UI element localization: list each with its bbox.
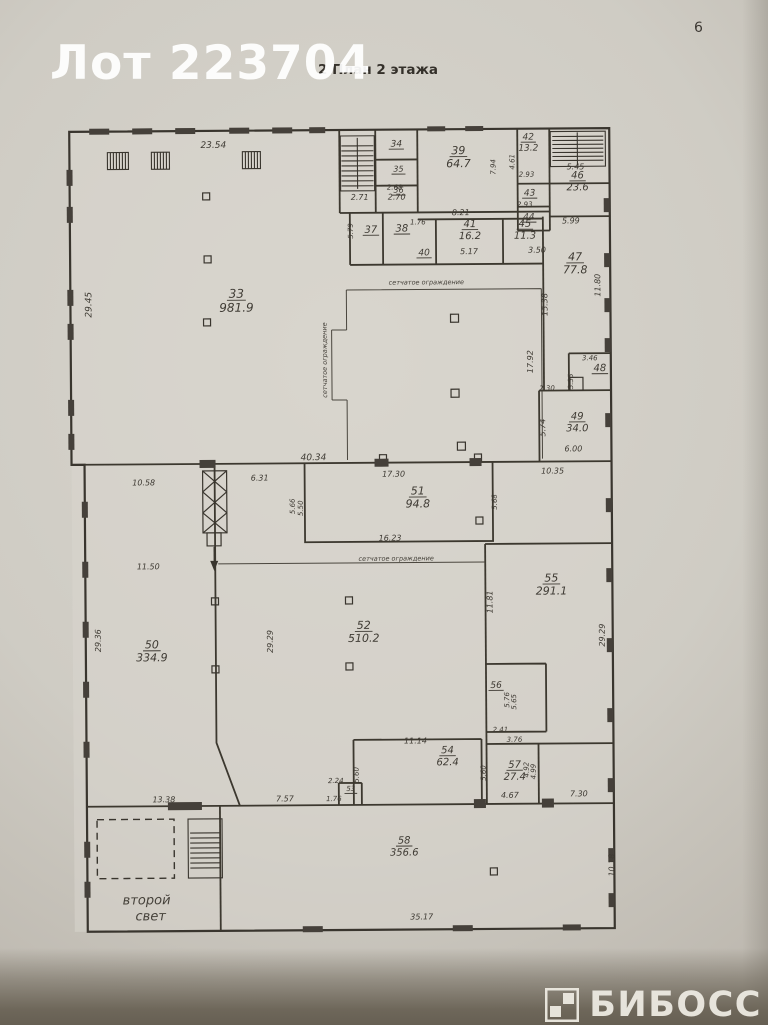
dim-label: 29.29: [598, 624, 607, 647]
biboss-watermark: БИБОСС: [545, 985, 762, 1025]
svg-text:48: 48: [593, 363, 606, 374]
dim-label: 5.60: [353, 767, 361, 783]
dim-label: 4.99: [530, 763, 538, 779]
dim-label: 5.74: [538, 419, 547, 437]
svg-text:11.3: 11.3: [514, 231, 536, 242]
dim-label: 40.34: [301, 453, 327, 463]
room-label: 56: [488, 681, 503, 691]
room-label: 37: [363, 225, 379, 236]
room-label: 34: [389, 140, 404, 150]
svg-text:51: 51: [411, 484, 425, 497]
dim-label: 2.30: [539, 384, 555, 392]
dim-label: 11.14: [404, 736, 427, 745]
svg-text:23.6: 23.6: [566, 182, 588, 193]
dim-label: 3.46: [582, 354, 598, 362]
svg-text:50: 50: [145, 638, 159, 651]
note-label: сетчатое ограждение: [359, 554, 434, 563]
svg-text:77.8: 77.8: [563, 263, 588, 276]
dim-label: 5.60: [480, 765, 488, 781]
svg-text:291.1: 291.1: [536, 584, 568, 597]
dim-label: 6.31: [251, 473, 269, 482]
dim-label: 5.79: [347, 223, 355, 239]
svg-text:34: 34: [391, 140, 403, 150]
svg-text:57: 57: [508, 760, 521, 771]
dim-label: 2.70: [388, 193, 406, 202]
dim-label: 7.94: [489, 159, 497, 175]
svg-text:40: 40: [418, 248, 430, 258]
dim-label: 5.99: [562, 216, 580, 225]
room-label: 35: [391, 165, 405, 175]
dim-label: 5.50: [297, 500, 305, 516]
svg-text:33: 33: [229, 287, 244, 301]
svg-text:38: 38: [395, 224, 408, 235]
page-number: 6: [694, 20, 703, 36]
svg-text:64.7: 64.7: [446, 157, 471, 170]
svg-text:47: 47: [568, 250, 582, 263]
svg-text:35: 35: [393, 165, 403, 174]
dim-label: 29.45: [84, 292, 94, 318]
dim-label: 35.17: [410, 912, 434, 921]
svg-text:49: 49: [571, 411, 584, 422]
svg-text:510.2: 510.2: [348, 632, 380, 645]
dim-label: 11.80: [593, 274, 602, 297]
svg-text:981.9: 981.9: [219, 301, 253, 315]
svg-text:53: 53: [346, 785, 355, 793]
svg-text:13.2: 13.2: [518, 144, 538, 154]
svg-text:37: 37: [365, 225, 378, 236]
dim-label: 5.68: [491, 494, 499, 510]
dim-label: 2.41: [493, 726, 509, 734]
dim-label: 4.61: [508, 154, 516, 170]
dim-label: 10.58: [132, 478, 155, 487]
svg-text:34.0: 34.0: [566, 423, 588, 434]
dim-label: 3.76: [507, 736, 523, 744]
dim-label: 3.50: [528, 246, 546, 255]
svg-text:45: 45: [518, 219, 531, 230]
room-label: 48: [592, 363, 608, 374]
dim-label: 13.38: [152, 795, 175, 804]
svg-text:356.6: 356.6: [390, 847, 419, 858]
room-label: 40: [416, 248, 431, 258]
dim-label: 10.35: [541, 466, 564, 475]
dim-label: 1.76: [410, 218, 426, 226]
dim-label: 15.38: [540, 293, 549, 316]
svg-text:39: 39: [451, 144, 465, 157]
dim-label: 10.18: [607, 854, 616, 877]
dim-label: 8.21: [452, 208, 470, 217]
svg-text:55: 55: [544, 571, 558, 584]
dim-label: 1.76: [326, 795, 342, 803]
dim-label: 2.71: [351, 193, 369, 202]
room-label: 38: [394, 224, 410, 235]
svg-text:54: 54: [441, 745, 454, 756]
dim-label: 5.17: [460, 247, 479, 256]
room-label: 43: [522, 189, 537, 199]
note-label: свет: [135, 909, 166, 924]
dim-label: 6.00: [565, 444, 583, 453]
svg-text:52: 52: [357, 619, 371, 632]
dim-label: 11.50: [137, 562, 160, 571]
lot-watermark: Лот 223704: [50, 36, 371, 91]
dim-label: 7.30: [570, 789, 588, 798]
dim-label: 17.30: [382, 470, 405, 479]
dim-label: 4.67: [501, 791, 520, 800]
dim-label: 5.45: [567, 162, 585, 171]
dim-label: 7.57: [276, 794, 295, 803]
dim-label: 5.66: [289, 498, 297, 514]
dim-label: 2.24: [328, 777, 344, 785]
note-label: сетчатое ограждение: [389, 278, 464, 287]
svg-text:42: 42: [523, 133, 535, 143]
svg-text:334.9: 334.9: [136, 651, 168, 664]
floor-plan-drawing: 33981.934353637383964.7404116.24213.2434…: [0, 0, 768, 1025]
svg-text:94.8: 94.8: [406, 497, 431, 510]
dim-label: 29.29: [266, 630, 275, 653]
dim-label: 2.68: [387, 184, 403, 192]
dim-label: 2.93: [517, 201, 533, 209]
svg-text:16.2: 16.2: [459, 231, 481, 242]
dim-label: 11.81: [485, 590, 494, 613]
svg-text:43: 43: [524, 189, 536, 199]
dim-label: 2.93: [519, 171, 535, 179]
svg-text:56: 56: [490, 681, 502, 691]
dim-label: 29.36: [94, 629, 103, 652]
note-label: второй: [123, 893, 171, 908]
svg-text:41: 41: [463, 219, 476, 230]
dim-label: 5.65: [510, 693, 518, 709]
dim-label: 3.35: [567, 373, 575, 389]
dim-label: 17.92: [526, 350, 535, 373]
dim-label: 16.23: [379, 534, 402, 543]
svg-text:46: 46: [571, 170, 584, 181]
note-label: сетчатое ограждение: [321, 322, 330, 397]
dim-label: 23.54: [200, 141, 226, 151]
svg-text:62.4: 62.4: [436, 757, 458, 768]
svg-text:58: 58: [398, 836, 411, 847]
biboss-logo-icon: [545, 988, 579, 1022]
biboss-logo-text: БИБОСС: [589, 985, 762, 1025]
